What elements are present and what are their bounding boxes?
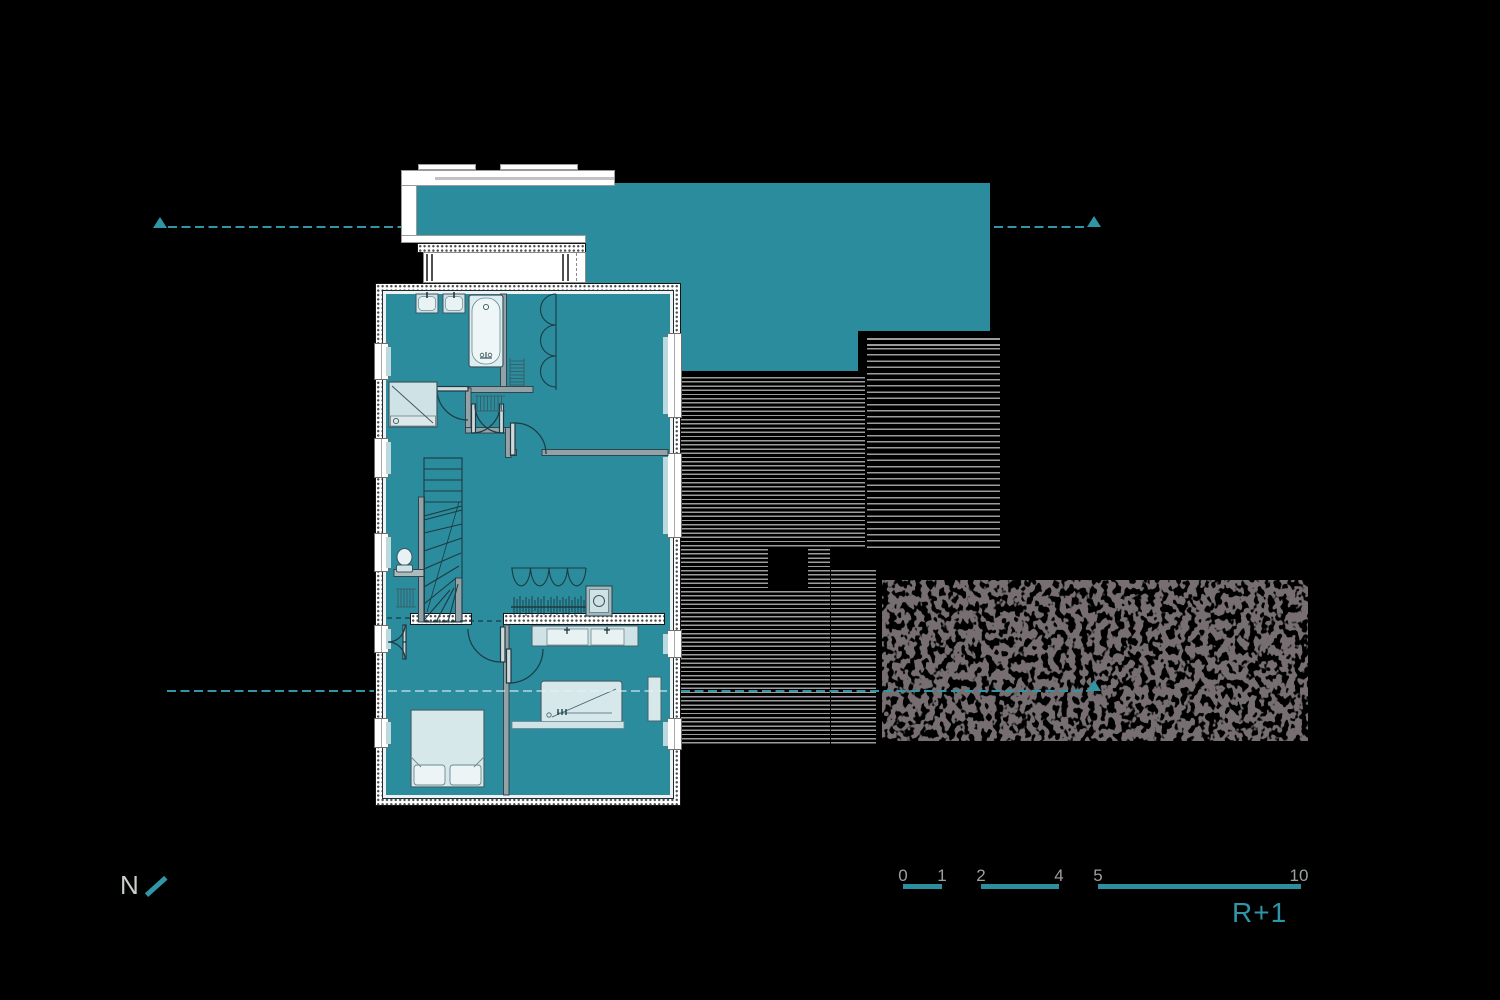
scale-tick-5: 5 — [1085, 866, 1111, 886]
shower — [389, 382, 437, 427]
desk-shelf — [512, 722, 624, 729]
stair-opening-dashed — [387, 618, 505, 621]
desk — [541, 681, 622, 723]
section-line-a-west — [168, 226, 401, 228]
section-line-b-east — [681, 690, 1088, 692]
section-arrow-a-east — [1087, 216, 1101, 227]
scale-tick-1: 1 — [929, 866, 955, 886]
scale-tick-2: 2 — [968, 866, 994, 886]
section-line-a-east — [994, 226, 1088, 228]
scale-bar-segment-2 — [981, 884, 1059, 889]
plan-linework — [0, 0, 1500, 1000]
scale-bar-segment-1 — [903, 884, 942, 889]
radiator-west — [396, 589, 416, 607]
scale-tick-4: 4 — [1046, 866, 1072, 886]
basin-unit — [586, 586, 612, 616]
wardrobe — [511, 568, 586, 617]
vanity-counter — [532, 626, 638, 646]
scale-bar-segment-3 — [1098, 884, 1301, 889]
bed — [411, 710, 484, 787]
floor-plan-canvas: N 0 1 2 4 5 10 R+1 — [0, 0, 1500, 1000]
bathtub — [469, 295, 503, 367]
radiator-hall — [510, 358, 524, 387]
floor-label: R+1 — [1232, 897, 1287, 929]
washbasin-2 — [443, 292, 465, 313]
wall-shelf — [648, 677, 661, 721]
section-arrow-a-west — [153, 217, 167, 228]
section-line-b-interior — [388, 690, 668, 692]
section-arrow-b-east — [1087, 680, 1101, 691]
scale-tick-10: 10 — [1286, 866, 1312, 886]
closet-doors — [541, 294, 557, 390]
toilet — [397, 549, 413, 573]
north-label: N — [120, 870, 139, 901]
scale-tick-0: 0 — [890, 866, 916, 886]
section-line-b-west — [167, 690, 374, 692]
washbasin-1 — [416, 292, 438, 313]
